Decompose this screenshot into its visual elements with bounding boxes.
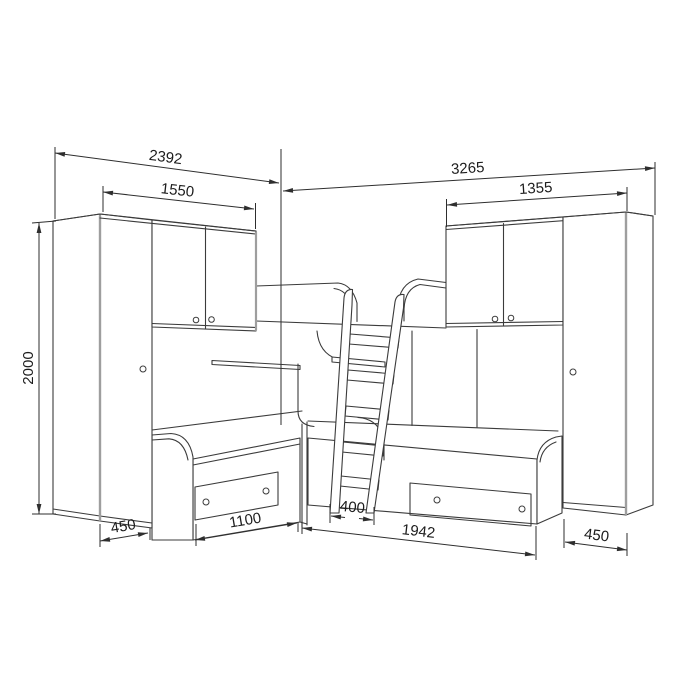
door-knob [570,369,576,375]
bunk-guardrail-left [256,283,357,322]
drawer-knob [203,499,209,505]
left-wardrobe [53,214,152,528]
bunk-support-panel-left [298,364,314,427]
dim-label-overall-left: 2392 [148,147,183,168]
door-knob [209,317,215,323]
door-knob [193,317,199,323]
right-bed-footboard [537,436,562,524]
dim-line-ladder-right-arrow [359,519,373,521]
dim-label-overall-right: 3265 [451,159,485,178]
right-wardrobe-front [563,212,626,515]
left-bed [152,411,302,540]
drawing-canvas: 2392 1550 3265 1355 2000 450 1100 400 19… [0,0,700,700]
bunk-shelf [212,361,300,370]
right-bed-back-rail [308,421,558,431]
bunk-guardrail-right-inner [404,285,446,322]
corner-posts [300,422,307,527]
drawer-knob [434,497,440,503]
dim-label-bed-right: 1942 [401,521,436,542]
dim-label-cabinet-right: 1355 [518,179,552,198]
dim-label-height: 2000 [20,351,37,384]
extension-tick [32,221,56,223]
dim-label-depth-right: 450 [583,525,610,545]
left-wardrobe-side [53,214,100,521]
door-knob [508,315,514,321]
left-bed-headboard [152,434,193,541]
left-cabinet-body [152,220,256,331]
drawer-knob [263,488,269,494]
dim-line-ladder-left-arrow [331,516,345,518]
right-wardrobe-side [626,212,653,515]
drawer-knob [519,506,525,512]
door-knob [140,366,146,372]
bunk-support-curve-left [317,331,337,359]
dim-label-cabinet-left: 1550 [160,180,195,201]
door-knob [492,316,498,322]
right-wardrobe [563,212,653,515]
dim-label-depth-left: 450 [110,516,137,537]
corner-post-base [300,522,307,524]
furniture-dimension-drawing: 2392 1550 3265 1355 2000 450 1100 400 19… [0,0,700,700]
left-bed-back-rail [152,411,302,430]
right-cabinet-body [446,217,563,327]
dim-label-ladder: 400 [339,498,365,517]
